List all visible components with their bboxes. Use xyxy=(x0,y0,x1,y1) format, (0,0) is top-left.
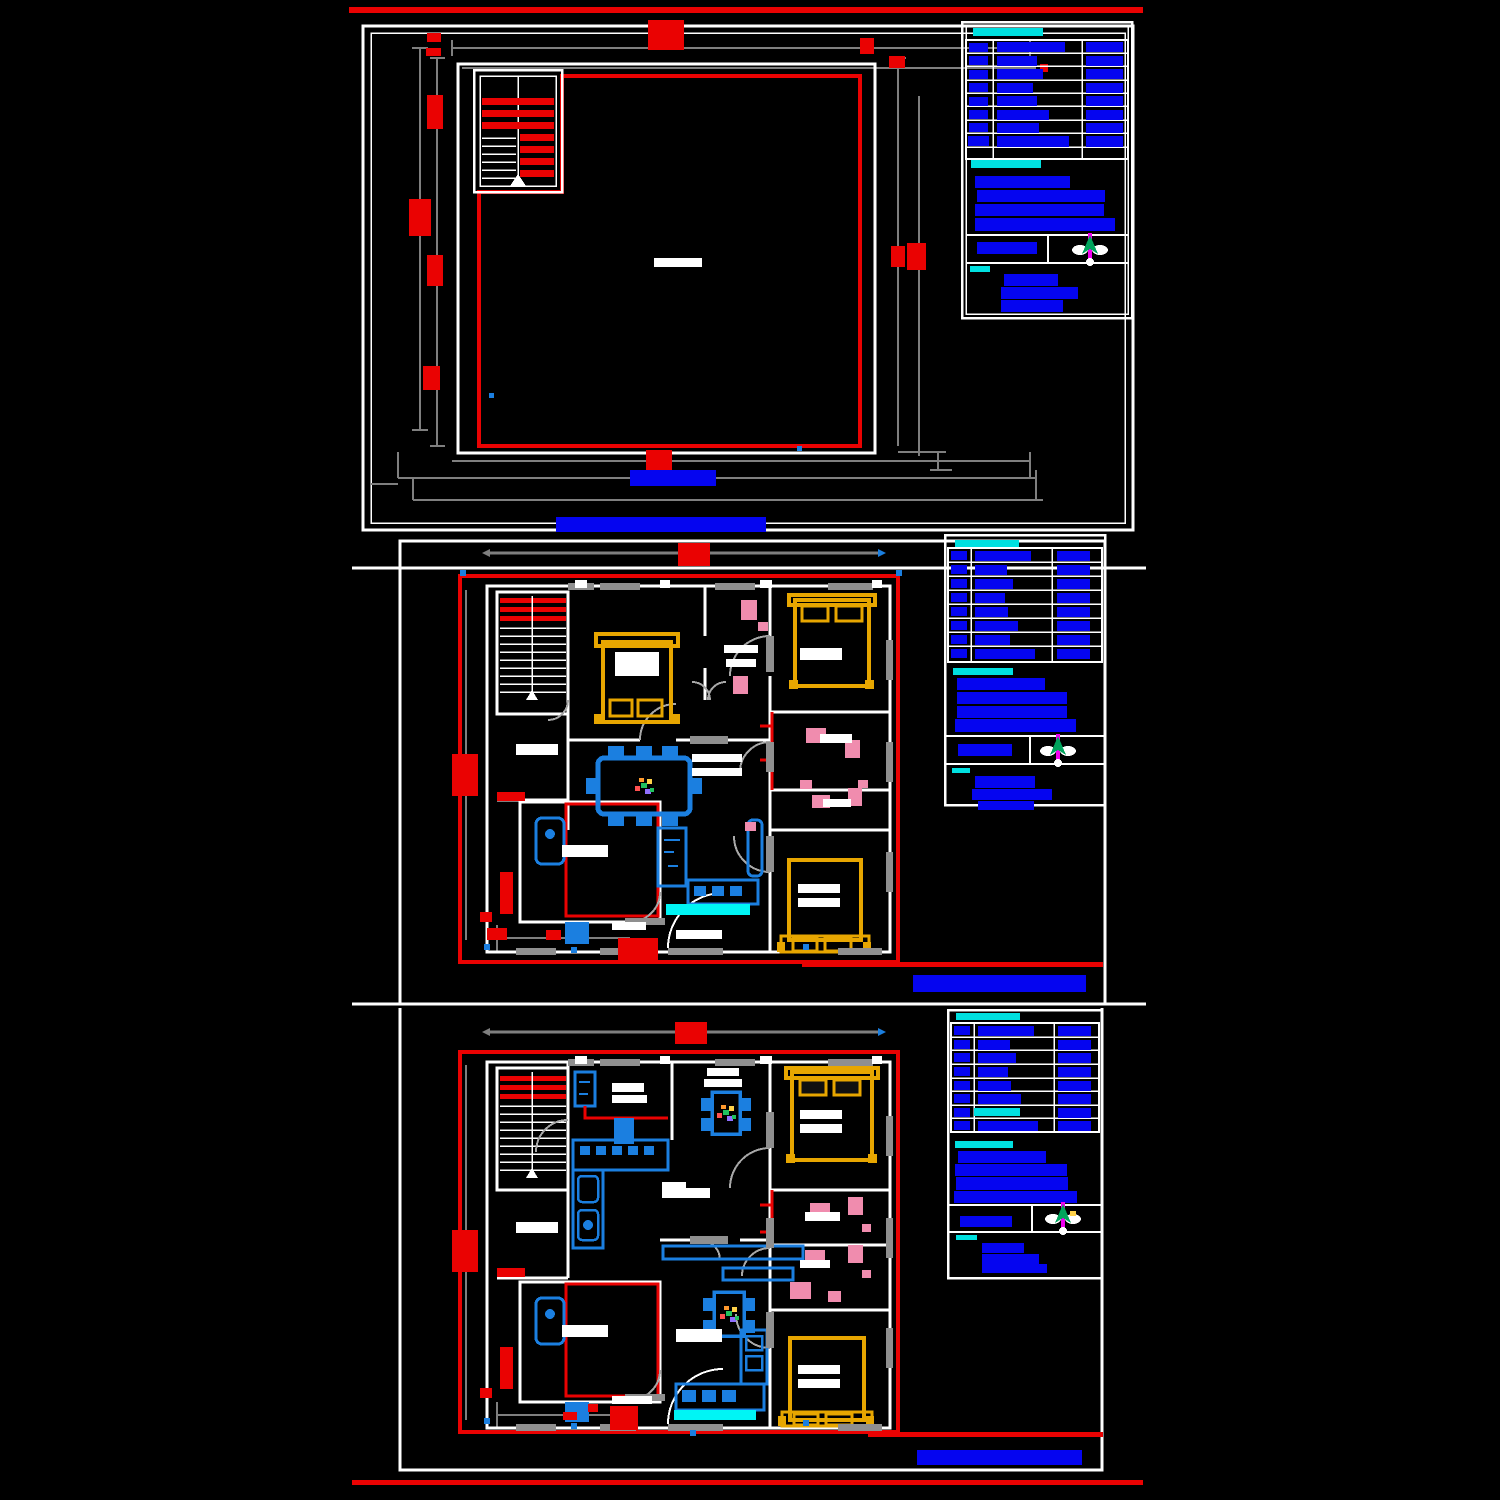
plan3-label-bars xyxy=(516,1056,882,1404)
roof-label-bars xyxy=(654,258,702,267)
dining-table-icon xyxy=(586,746,702,826)
water-heater-icon xyxy=(536,1298,564,1344)
bed-icon xyxy=(789,595,875,689)
top-red-line xyxy=(349,7,1143,13)
north-arrow-icon xyxy=(1040,734,1076,767)
plan-caption-bars xyxy=(556,470,1086,1465)
sheet-floor-plan-lower xyxy=(400,1008,1103,1470)
plan2-counter xyxy=(666,904,750,915)
plan2-bath-fixtures xyxy=(733,600,868,831)
plan3-stairs xyxy=(500,1072,566,1178)
north-arrow-accent xyxy=(1070,1211,1076,1216)
roof-blue-dots xyxy=(489,393,802,451)
north-arrow-icon xyxy=(1045,1202,1081,1235)
north-arrow-icon xyxy=(1072,233,1108,266)
bed-icon xyxy=(594,634,680,724)
sheet-floor-plan-upper xyxy=(400,535,1105,1004)
title-block-2 xyxy=(945,535,1105,810)
flower-icon xyxy=(717,1105,736,1121)
drawing-svg xyxy=(0,0,1500,1500)
plan3-red-boundary xyxy=(460,1052,898,1432)
plan2-stairs xyxy=(500,596,566,700)
dining-table-icon xyxy=(701,1092,751,1134)
water-heater-icon xyxy=(536,818,564,864)
step-landing xyxy=(662,1182,710,1198)
sheet-roof-plan xyxy=(363,20,1133,530)
roof-plan xyxy=(458,64,875,453)
plan3-counter xyxy=(674,1410,756,1420)
title-block-3 xyxy=(948,1010,1102,1278)
sheet1-dimension-lines xyxy=(370,40,1043,500)
roof-stairwell xyxy=(474,70,562,192)
plan3-red-room xyxy=(566,1284,658,1396)
sheet1-dimension-text-blocks xyxy=(409,20,1048,478)
plan2-label-bars xyxy=(516,580,882,939)
title-block-1 xyxy=(962,22,1132,318)
plan2-entry-arc xyxy=(668,893,723,948)
cad-canvas xyxy=(0,0,1500,1500)
title1-text-bars xyxy=(968,42,1123,312)
sofa-icons xyxy=(663,1246,803,1336)
bottom-red-line xyxy=(352,1480,1143,1485)
blue-box-icon xyxy=(565,922,589,944)
flower-icon xyxy=(635,778,654,794)
